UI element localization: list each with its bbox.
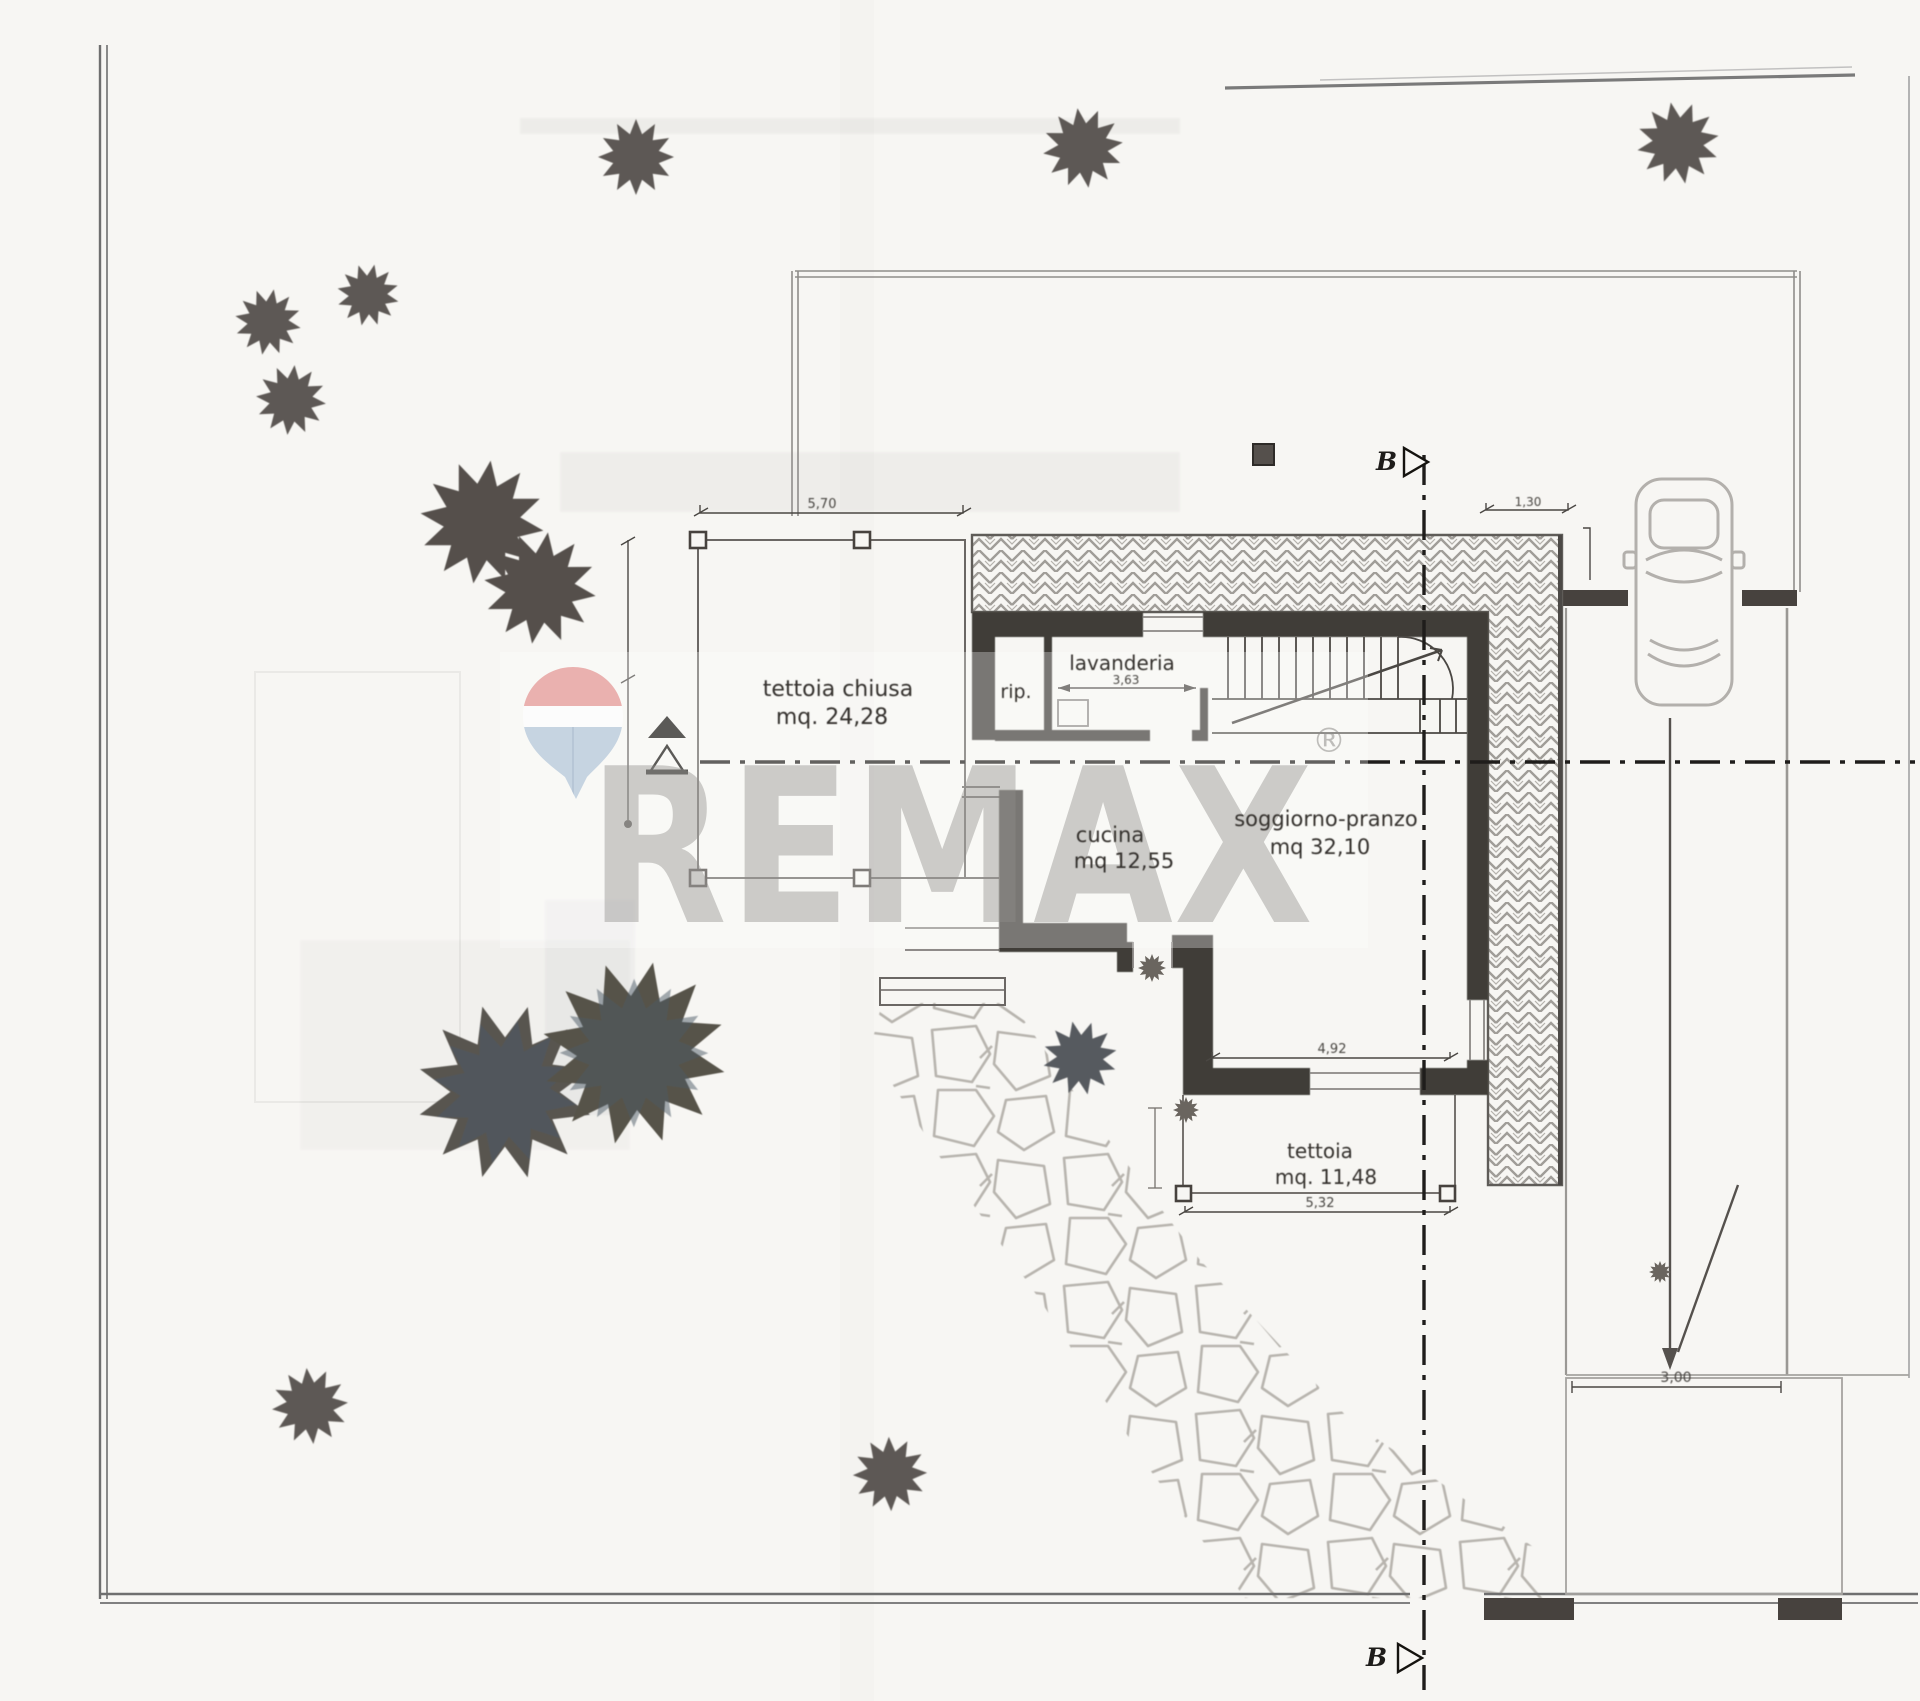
dim-driveway-width: 3,00	[1660, 1370, 1691, 1386]
room-label-tettoia-chiusa: tettoia chiusa	[763, 677, 914, 702]
dim-tettoia-low-width: 5,32	[1306, 1196, 1335, 1211]
room-area-tettoia-chiusa: mq. 24,28	[776, 705, 888, 730]
registered-mark: ®	[1312, 721, 1346, 761]
room-label-soggiorno: soggiorno-pranzo	[1234, 807, 1418, 831]
gate-post-wall	[1484, 1598, 1574, 1620]
dim-soggiorno-width: 4,92	[1318, 1042, 1347, 1057]
dim-tettoia-top: 5,70	[808, 497, 837, 512]
room-label-lavanderia: lavanderia	[1069, 651, 1175, 675]
dim-terrace-right: 1,30	[1515, 495, 1542, 509]
utility-marker-icon	[1253, 444, 1274, 465]
section-label-b-bottom: B	[1365, 1643, 1387, 1672]
room-area-soggiorno: mq 32,10	[1270, 835, 1371, 859]
room-area-cucina: mq 12,55	[1074, 849, 1175, 873]
room-label-rip: rip.	[1000, 681, 1031, 703]
site-plan-drawing: B B REMAX ® tettoia chiusa mq. 24,28 rip…	[0, 0, 1920, 1701]
remax-watermark-text: REMAX	[588, 722, 1314, 973]
dim-lavanderia-width: 3,63	[1113, 673, 1140, 687]
room-area-tettoia: mq. 11,48	[1275, 1165, 1377, 1189]
gate-post-wall	[1778, 1598, 1842, 1620]
room-label-tettoia: tettoia	[1287, 1139, 1353, 1163]
room-label-cucina: cucina	[1076, 823, 1144, 847]
scanned-site-plan-page: B B REMAX ® tettoia chiusa mq. 24,28 rip…	[0, 0, 1920, 1701]
section-label-b-top: B	[1375, 447, 1397, 476]
